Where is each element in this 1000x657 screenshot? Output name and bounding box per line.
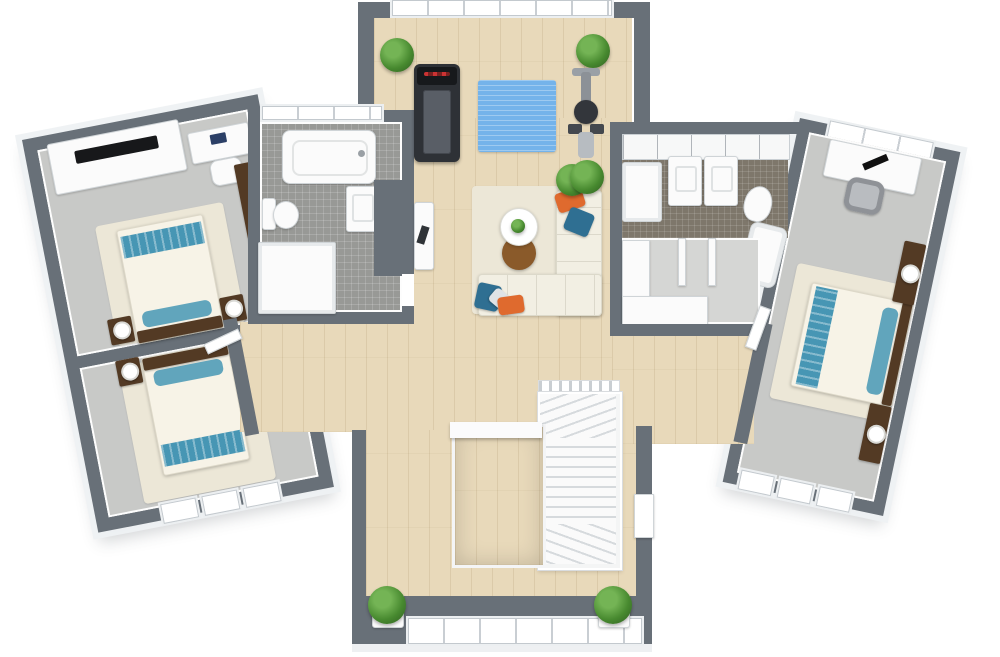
table-plant (511, 219, 525, 233)
treadmill-belt (423, 90, 451, 154)
potted-plant (570, 160, 604, 194)
shower (258, 242, 336, 314)
tv-console (46, 119, 187, 196)
closet-partition (678, 238, 686, 286)
elliptical-flywheel (574, 100, 598, 124)
stairwell-beam (450, 422, 542, 438)
stairwell-void (452, 424, 546, 568)
treadmill-console-lights (424, 72, 450, 76)
throw-pillow-orange (497, 294, 525, 315)
east-hallway-floor (612, 336, 754, 444)
bathtub-basin (292, 140, 368, 176)
sink-basin (711, 166, 733, 192)
sink-basin (675, 166, 697, 192)
elliptical-trainer (566, 68, 606, 160)
bath-door-opening (402, 274, 414, 306)
potted-plant (594, 586, 632, 624)
shower (622, 162, 662, 222)
bathroom-window (262, 106, 382, 120)
potted-plant (380, 38, 414, 72)
potted-plant (368, 586, 406, 624)
wardrobe-shelving (622, 296, 708, 326)
bed-runner (161, 429, 246, 466)
exterior-door (634, 494, 654, 538)
bath-right-walls (610, 122, 800, 134)
gym-window (392, 0, 612, 16)
office-chair (842, 175, 886, 216)
bath-faucet (358, 150, 365, 157)
treadmill (414, 64, 460, 162)
sink-basin (352, 194, 374, 222)
stair-straight-flight (540, 438, 616, 524)
stair-winder-top (540, 394, 616, 438)
closet-partition (708, 238, 716, 286)
bath-right-left-wall (610, 122, 622, 336)
gym-right-wall (634, 2, 650, 124)
stair-winder-bottom (540, 524, 616, 564)
stair-hall-left-wall (352, 430, 366, 598)
bed-runner (120, 221, 205, 258)
vanity-partition (374, 180, 402, 276)
elliptical-base (578, 132, 594, 158)
bottom-eave (352, 644, 652, 652)
floorplan-scene (0, 0, 1000, 657)
potted-plant (576, 34, 610, 68)
closet-bottom-wall (610, 324, 760, 336)
u-shaped-staircase (538, 392, 622, 570)
toilet-bowl (273, 201, 299, 229)
exercise-mat (478, 80, 556, 152)
west-hallway-floor (240, 322, 420, 432)
treadmill-console (417, 67, 457, 85)
